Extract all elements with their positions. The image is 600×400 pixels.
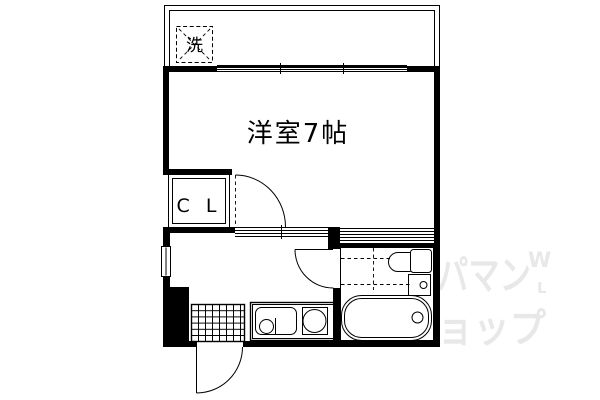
balcony-inner-line xyxy=(170,11,435,67)
watermark-mark-w: W xyxy=(528,248,551,272)
stove-unit xyxy=(303,308,328,335)
bathroom-door-swing-arc xyxy=(295,250,334,289)
entrance-door-swing-arc xyxy=(197,347,243,393)
room-door xyxy=(236,175,286,227)
bathtub xyxy=(342,296,432,341)
wall-top-left xyxy=(163,66,217,72)
floor-plan-image: パマン ョップ W L 洗 xyxy=(0,0,600,400)
watermark-line1: パマン xyxy=(437,253,531,299)
watermark-mark-l: L xyxy=(537,279,547,297)
floor-plan: パマン ョップ W L 洗 xyxy=(0,0,600,400)
bathroom-top-wall xyxy=(336,243,440,247)
bathroom-inner-outline xyxy=(341,248,434,341)
wall-corner-mass xyxy=(163,287,189,342)
vanity-faucet xyxy=(420,282,427,289)
entrance-door xyxy=(197,347,243,393)
entrance-floor-hatch xyxy=(192,305,245,342)
genkan-tile-area xyxy=(192,305,245,342)
kitchen-left-window xyxy=(162,247,171,277)
kitchen-counter xyxy=(251,303,336,341)
wall-bottom-right xyxy=(243,341,440,347)
wall-left-kitchen-upper xyxy=(163,233,170,246)
closet-label: C L xyxy=(177,195,222,217)
stove-burner xyxy=(303,310,326,333)
wall-left-upper xyxy=(163,66,169,175)
vanity-sink xyxy=(409,275,431,296)
balcony-sliding-window xyxy=(217,63,407,74)
main-room: 洋室7帖 xyxy=(247,119,350,149)
bathroom-door xyxy=(295,250,334,289)
closet: C L xyxy=(169,175,286,228)
washing-machine-space: 洗 xyxy=(177,27,213,63)
sink-drain xyxy=(260,320,274,334)
toilet-bowl xyxy=(389,253,411,272)
toilet xyxy=(389,250,432,273)
bathtub-outer-rim xyxy=(342,296,432,341)
wall-left-kitchen-lower xyxy=(163,277,170,287)
washer-label: 洗 xyxy=(186,36,203,56)
bathtub-drain xyxy=(412,312,423,323)
bathtub-inner xyxy=(345,299,429,338)
bathroom xyxy=(341,248,434,341)
watermark: パマン ョップ W L xyxy=(437,248,551,352)
wall-kitchen-bath-lower xyxy=(333,288,340,341)
bathroom-room-window-band xyxy=(336,229,434,241)
toilet-tank xyxy=(411,250,432,273)
kitchen-room-sliding-door xyxy=(235,225,328,239)
main-room-label: 洋室7帖 xyxy=(247,119,350,149)
balcony: 洗 xyxy=(165,6,440,67)
balcony-outer-line xyxy=(165,6,440,67)
room-door-swing-arc xyxy=(236,175,286,227)
watermark-line2: ョップ xyxy=(437,306,546,352)
kitchen xyxy=(192,250,336,342)
wall-right xyxy=(434,66,440,347)
